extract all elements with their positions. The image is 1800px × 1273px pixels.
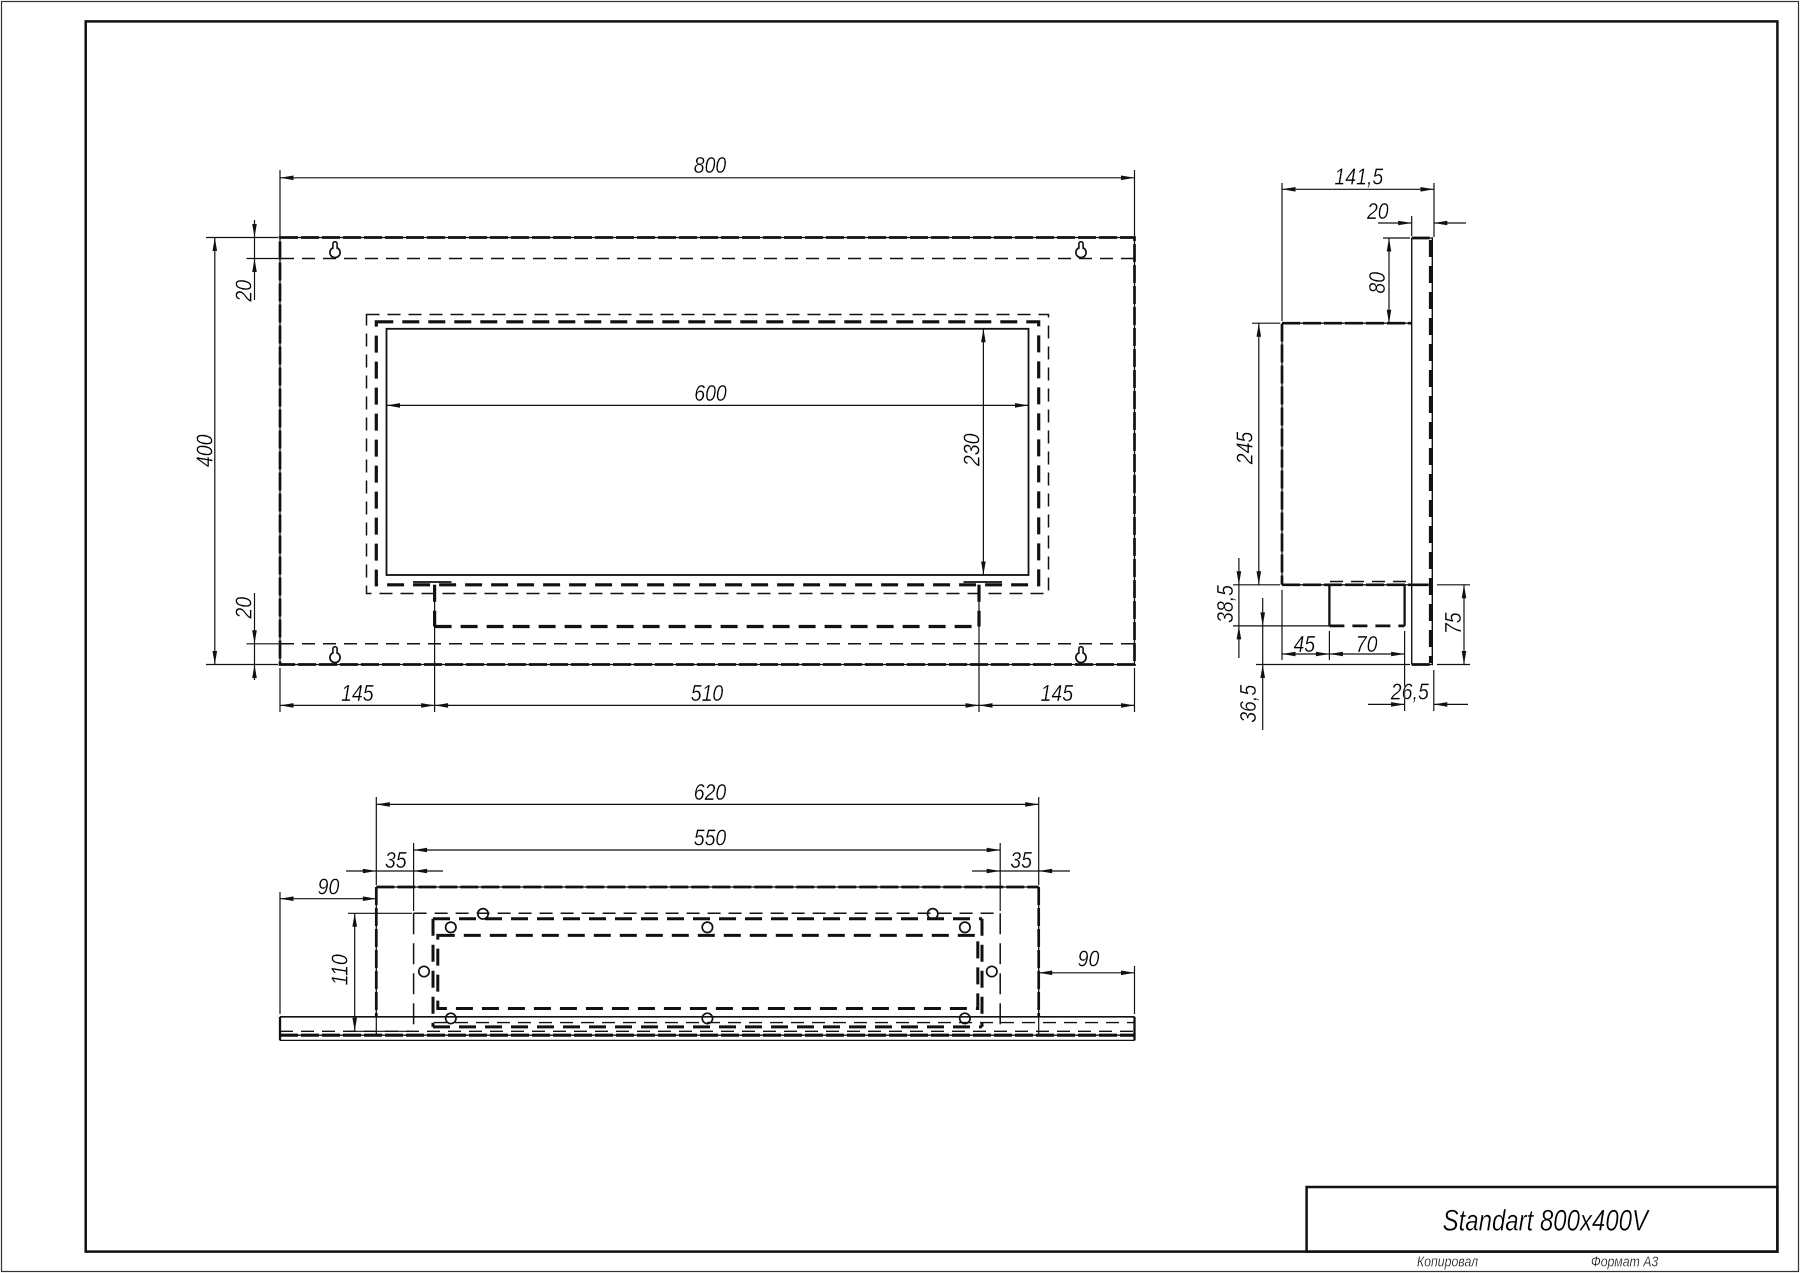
svg-text:550: 550 [694, 825, 727, 851]
svg-text:600: 600 [694, 380, 727, 406]
svg-text:510: 510 [691, 680, 724, 706]
svg-text:35: 35 [1010, 847, 1032, 873]
svg-text:20: 20 [231, 597, 257, 620]
svg-text:45: 45 [1293, 631, 1315, 657]
svg-text:90: 90 [318, 874, 340, 900]
svg-text:20: 20 [231, 280, 257, 303]
svg-text:620: 620 [694, 779, 727, 805]
svg-text:Копировал: Копировал [1417, 1254, 1479, 1270]
svg-text:230: 230 [959, 433, 985, 467]
svg-text:245: 245 [1232, 432, 1258, 466]
svg-text:145: 145 [1040, 680, 1073, 706]
svg-text:Standart 800x400V: Standart 800x400V [1443, 1203, 1651, 1237]
svg-text:70: 70 [1356, 631, 1378, 657]
svg-text:26,5: 26,5 [1390, 679, 1429, 705]
svg-text:36,5: 36,5 [1235, 685, 1261, 723]
svg-text:75: 75 [1441, 612, 1467, 634]
svg-text:400: 400 [192, 434, 218, 467]
svg-text:20: 20 [1366, 198, 1389, 224]
svg-text:110: 110 [327, 954, 353, 985]
svg-text:38,5: 38,5 [1212, 585, 1238, 623]
svg-text:80: 80 [1364, 272, 1390, 294]
svg-text:90: 90 [1078, 946, 1100, 972]
svg-text:141,5: 141,5 [1334, 164, 1383, 190]
svg-text:145: 145 [341, 680, 374, 706]
svg-text:35: 35 [385, 847, 407, 873]
svg-text:Формат А3: Формат А3 [1591, 1254, 1659, 1270]
svg-text:800: 800 [694, 153, 727, 179]
